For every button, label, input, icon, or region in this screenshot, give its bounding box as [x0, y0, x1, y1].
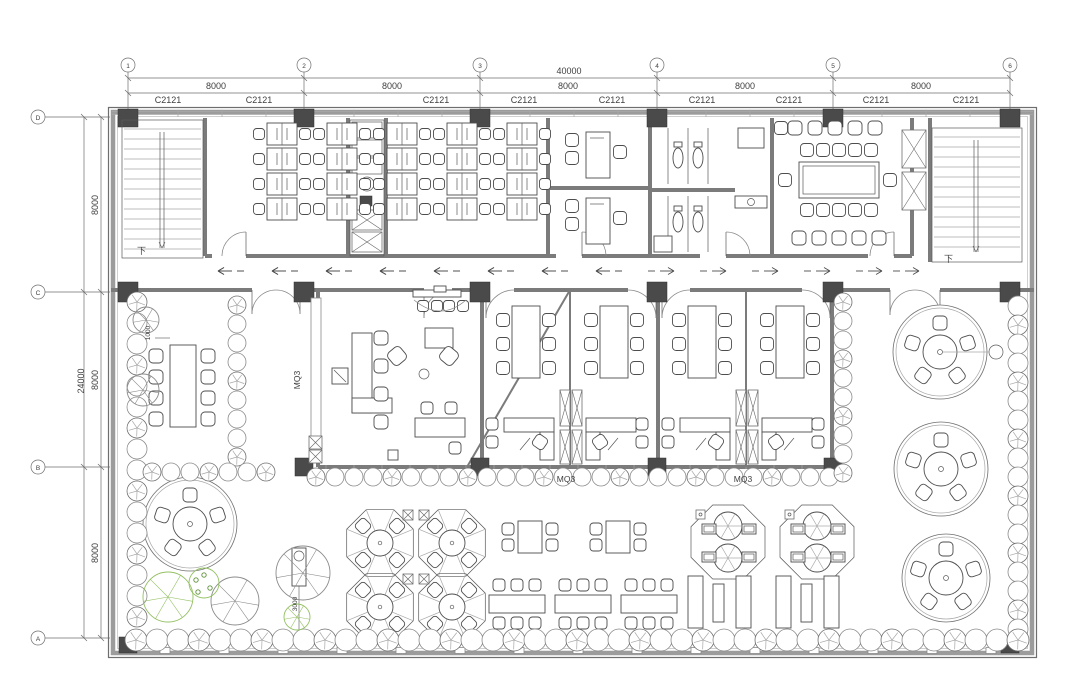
dim-bay-top: 8000	[911, 81, 931, 91]
desk-cluster	[374, 173, 431, 195]
grid-bubble-top-label: 2	[302, 63, 306, 70]
open-office-desks	[254, 123, 551, 220]
window-tag: C2121	[863, 95, 890, 105]
curtain-wall-tag-mid: MQ3	[557, 474, 576, 484]
desk-cluster	[434, 148, 491, 170]
desk-cluster	[434, 198, 491, 220]
desk-cluster	[494, 148, 551, 170]
grid-bubble-left-label: A	[36, 636, 41, 643]
grid-bubble-left-label: B	[36, 465, 40, 472]
conference-room	[775, 121, 897, 245]
window-tag: C2121	[689, 95, 716, 105]
meeting-office-room	[585, 306, 649, 460]
private-office	[566, 132, 627, 178]
dim-offset-3000: 3000	[292, 596, 299, 611]
round-banquette	[902, 534, 990, 622]
dim-bay-left: 8000	[90, 543, 100, 563]
window-tag: C2121	[599, 95, 626, 105]
meeting-office-room	[662, 306, 732, 460]
rect-table-6	[555, 579, 611, 629]
dim-bay-top: 8000	[382, 81, 402, 91]
grid-bubble-top-label: 3	[478, 63, 482, 70]
desk-cluster	[254, 148, 311, 170]
dim-bay-top: 8000	[735, 81, 755, 91]
window-tag: C2121	[953, 95, 980, 105]
floor-plan-sheet: 12345680008000800080008000DCBA8000800080…	[0, 0, 1080, 678]
window-tag: C2121	[776, 95, 803, 105]
grid-bubble-top-label: 5	[831, 63, 835, 70]
dim-offset-1000: 1000	[145, 325, 152, 340]
dim-bay-left: 8000	[90, 370, 100, 390]
rect-table-6	[489, 579, 545, 629]
round-banquette	[893, 305, 1003, 399]
gazebo-double-table	[780, 505, 854, 579]
desk-cluster	[314, 173, 371, 195]
desk-cluster	[494, 173, 551, 195]
walls-and-structure	[109, 108, 1037, 658]
private-office	[566, 198, 627, 244]
grid-bubble-top-label: 4	[655, 63, 659, 70]
square-table-4	[590, 521, 646, 553]
dim-bay-left: 8000	[90, 195, 100, 215]
grid-bubble-left-label: C	[36, 290, 41, 297]
desk-cluster	[494, 198, 551, 220]
curtain-wall-tag-left: MQ3	[292, 371, 302, 390]
round-banquette	[894, 422, 988, 516]
grid-bubble-top-label: 6	[1008, 63, 1012, 70]
desk-cluster	[434, 173, 491, 195]
reception-lounge	[332, 286, 469, 460]
stair-down-label-right: 下	[944, 254, 953, 264]
corridor-direction-arrows	[218, 268, 919, 275]
desk-cluster	[314, 148, 371, 170]
grid-bubble-left-label: D	[36, 115, 41, 122]
desk-cluster	[254, 173, 311, 195]
window-tag: C2121	[511, 95, 538, 105]
dim-bay-top: 8000	[558, 81, 578, 91]
stair-down-label-left: 下	[137, 246, 146, 256]
dim-total-top: 40000	[556, 66, 581, 76]
floor-plan-canvas: 12345680008000800080008000DCBA8000800080…	[0, 0, 1080, 678]
meeting-office-room	[761, 306, 825, 460]
round-banquette	[143, 477, 237, 571]
desk-cluster	[254, 198, 311, 220]
loungers	[688, 576, 839, 628]
window-tag: C2121	[155, 95, 182, 105]
meeting-office-room	[486, 306, 556, 460]
left-meeting-room	[149, 338, 215, 427]
rect-table-6	[621, 579, 677, 629]
window-tag: C2121	[246, 95, 273, 105]
curtain-wall-tag-right: MQ3	[734, 474, 753, 484]
window-tag: C2121	[423, 95, 450, 105]
dim-bay-top: 8000	[206, 81, 226, 91]
desk-cluster	[494, 123, 551, 145]
grid-bubble-top-label: 1	[126, 63, 130, 70]
furniture	[143, 121, 1003, 640]
dim-total-left: 24000	[76, 368, 86, 393]
gazebo-double-table	[691, 505, 765, 579]
desk-cluster	[314, 123, 371, 145]
square-table-4	[502, 521, 558, 553]
